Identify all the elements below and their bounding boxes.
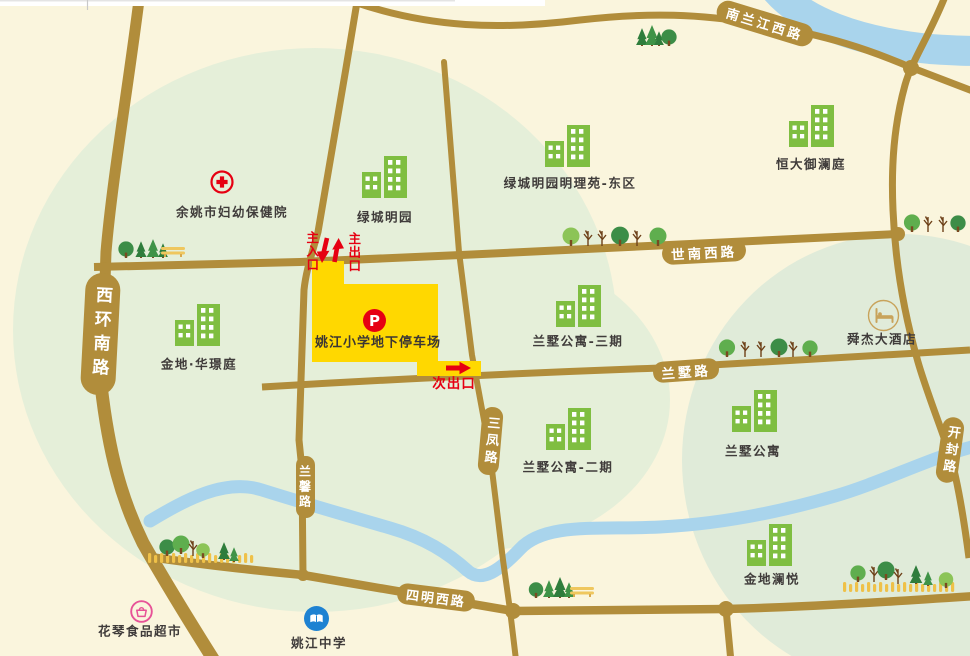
poi-huaqin_market-label: 花琴食品超市 [98, 621, 182, 640]
main-exit-arrow [335, 248, 338, 262]
poi-lanshu-label: 兰墅公寓 [725, 441, 781, 460]
poi-lvcheng_mingyuan-marker[interactable] [361, 154, 409, 198]
poi-yaojiang_school-marker[interactable] [303, 605, 330, 632]
hospital-cross-icon [209, 169, 235, 195]
road-label-text: 三凤路 [478, 415, 501, 467]
map-canvas: P 姚江小学地下停车场 主入口 主出口 次出口 西环南路南兰江西路世南西路兰墅路… [0, 0, 970, 656]
building-icon [545, 406, 593, 450]
poi-yuyao_hospital-label: 余姚市妇幼保健院 [176, 202, 288, 221]
road-label-text: 兰馨路 [297, 465, 314, 510]
building-icon [731, 388, 779, 432]
parking-p-icon[interactable]: P [363, 309, 386, 332]
building-icon [555, 283, 603, 327]
road-label-text: 西环南路 [85, 285, 115, 382]
poi-jindi_huajing-label: 金地·华璟庭 [161, 354, 237, 373]
building-icon [544, 123, 592, 167]
poi-jindi_lanyue-marker[interactable] [746, 522, 794, 566]
road-label-xihuannanlu: 西环南路 [79, 272, 120, 396]
main-entrance-label: 主入口 [305, 231, 318, 272]
road-label-lanshulu: 兰墅路 [652, 357, 719, 383]
poi-hengda-marker[interactable] [788, 103, 836, 147]
parking-p-letter: P [369, 312, 380, 330]
building-icon [746, 522, 794, 566]
building-icon [174, 302, 222, 346]
main-exit-label: 主出口 [347, 232, 360, 273]
building-icon [788, 103, 836, 147]
map-geometry [0, 0, 970, 656]
parking-area-label: 姚江小学地下停车场 [315, 332, 441, 351]
poi-shunjie_hotel-marker[interactable] [867, 299, 900, 332]
poi-lanshu_2-marker[interactable] [545, 406, 593, 450]
road-label-lanxinlu: 兰馨路 [296, 456, 315, 518]
poi-hengda-label: 恒大御澜庭 [776, 154, 846, 173]
poi-mingliyuan-label: 绿城明园明理苑-东区 [504, 173, 637, 192]
building-icon [361, 154, 409, 198]
road-label-text: 兰墅路 [661, 358, 712, 381]
secondary-exit-label: 次出口 [432, 372, 476, 392]
poi-lanshu-marker[interactable] [731, 388, 779, 432]
poi-lanshu_2-label: 兰墅公寓-二期 [523, 457, 614, 476]
poi-lanshu_3-marker[interactable] [555, 283, 603, 327]
poi-mingliyuan-marker[interactable] [544, 123, 592, 167]
poi-yuyao_hospital-marker[interactable] [209, 169, 235, 195]
road-label-text: 世南西路 [671, 240, 738, 263]
poi-lanshu_3-label: 兰墅公寓-三期 [533, 331, 624, 350]
road-label-shinanxilu: 世南西路 [661, 239, 746, 265]
hotel-bed-icon [867, 299, 900, 332]
poi-shunjie_hotel-label: 舜杰大酒店 [847, 329, 917, 348]
poi-jindi_lanyue-label: 金地澜悦 [744, 569, 800, 588]
poi-lvcheng_mingyuan-label: 绿城明园 [357, 207, 413, 226]
school-book-icon [303, 605, 330, 632]
poi-jindi_huajing-marker[interactable] [174, 302, 222, 346]
poi-yaojiang_school-label: 姚江中学 [291, 633, 347, 652]
